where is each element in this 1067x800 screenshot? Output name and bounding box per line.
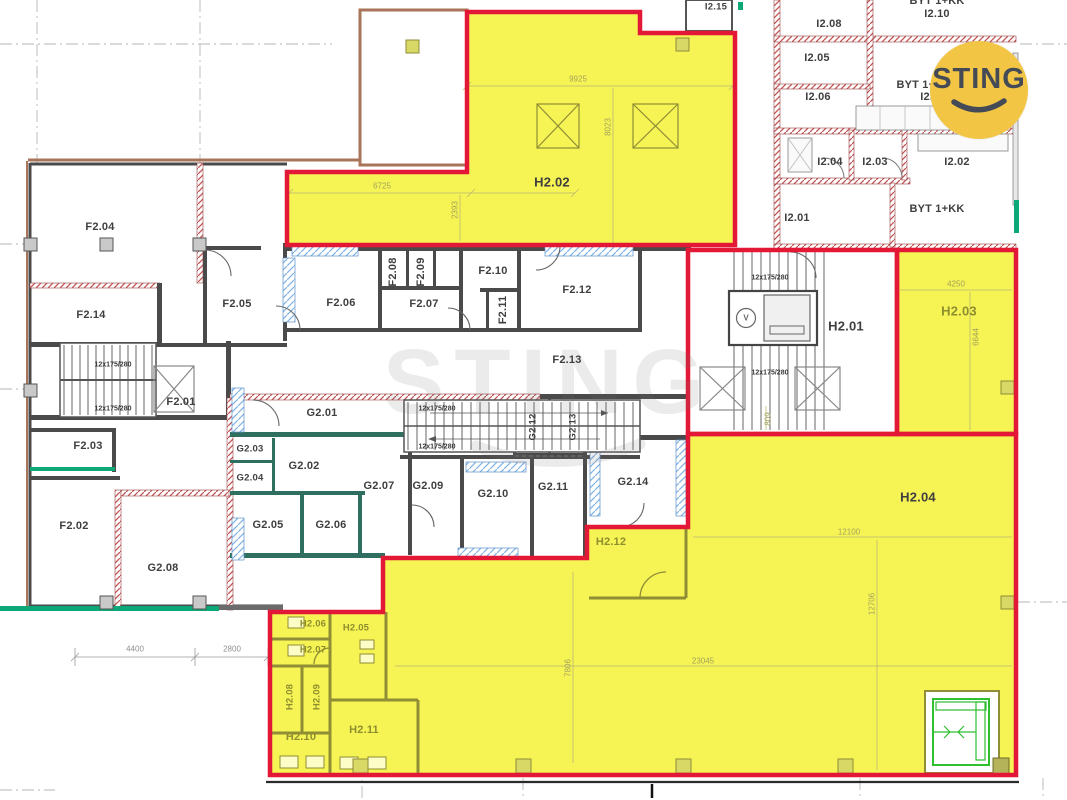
room-label-i2-15: I2.15 bbox=[705, 2, 727, 13]
room-label-i2-03: I2.03 bbox=[862, 156, 887, 168]
dim-12100: 12100 bbox=[838, 528, 860, 537]
stair-note-g2: 12x175/280 bbox=[419, 444, 456, 451]
room-label-i2-06: I2.06 bbox=[805, 91, 830, 103]
floor-plan: STING F2.04 F2.14 F2.05 F2.01 F2.03 F2.0… bbox=[0, 0, 1067, 800]
room-label-g2-09: G2.09 bbox=[413, 480, 444, 492]
dim-809: 809 bbox=[764, 412, 773, 425]
sting-watermark-smile bbox=[468, 438, 648, 478]
dim-6644: 6644 bbox=[972, 328, 981, 346]
room-label-h2-04: H2.04 bbox=[900, 490, 936, 505]
room-label-f2-02: F2.02 bbox=[59, 520, 88, 532]
sting-logo: STING bbox=[930, 41, 1028, 139]
room-label-g2-11: G2.11 bbox=[538, 481, 568, 493]
sting-logo-smile-icon bbox=[948, 98, 1010, 118]
room-label-g2-12: G2.12 bbox=[528, 414, 539, 441]
room-label-f2-11: F2.11 bbox=[497, 296, 509, 325]
room-label-i2-05: I2.05 bbox=[804, 52, 829, 64]
room-label-f2-01: F2.01 bbox=[166, 396, 195, 408]
room-label-h2-01: H2.01 bbox=[828, 319, 864, 334]
room-label-h2-06: H2.06 bbox=[300, 619, 326, 630]
elevator-bottom-right bbox=[925, 691, 1009, 775]
elevator-h201 bbox=[729, 291, 817, 345]
room-label-i2-10: I2.10 bbox=[924, 8, 949, 20]
room-label-f2-05: F2.05 bbox=[222, 298, 251, 310]
room-label-h2-07: H2.07 bbox=[300, 645, 326, 656]
room-label-f2-14: F2.14 bbox=[76, 309, 105, 321]
stair-note-f2: 12x175/280 bbox=[95, 406, 132, 413]
stair-note-f1: 12x175/280 bbox=[95, 362, 132, 369]
room-label-h2-03: H2.03 bbox=[941, 304, 977, 319]
room-label-byt-bottom: BYT 1+KK bbox=[909, 203, 964, 215]
room-label-g2-14: G2.14 bbox=[618, 476, 649, 488]
room-label-h2-11: H2.11 bbox=[349, 724, 379, 736]
room-label-f2-06: F2.06 bbox=[326, 297, 355, 309]
plan-linework bbox=[0, 0, 1067, 800]
dim-9925: 9925 bbox=[569, 75, 587, 84]
elevator-mark: V bbox=[743, 314, 748, 323]
room-label-g2-10: G2.10 bbox=[478, 488, 509, 500]
room-label-i2-01: I2.01 bbox=[784, 212, 809, 224]
room-label-h2-08: H2.08 bbox=[285, 684, 296, 710]
dim-4250: 4250 bbox=[947, 280, 965, 289]
room-label-f2-03: F2.03 bbox=[73, 440, 102, 452]
room-label-h2-12: H2.12 bbox=[596, 536, 626, 548]
dim-2800: 2800 bbox=[223, 645, 241, 654]
room-label-g2-08: G2.08 bbox=[148, 562, 179, 574]
room-label-g2-13: G2.13 bbox=[568, 414, 579, 441]
room-label-g2-02: G2.02 bbox=[289, 460, 320, 472]
sting-logo-text: STING bbox=[932, 63, 1026, 96]
dim-4400: 4400 bbox=[126, 645, 144, 654]
dim-23045: 23045 bbox=[692, 657, 714, 666]
room-label-g2-07: G2.07 bbox=[364, 480, 395, 492]
stair-note-h1: 12x175/280 bbox=[752, 275, 789, 282]
room-label-i2-02: I2.02 bbox=[944, 156, 969, 168]
dim-8023: 8023 bbox=[604, 118, 613, 136]
room-label-g2-04: G2.04 bbox=[237, 473, 264, 484]
room-label-h2-09: H2.09 bbox=[312, 684, 323, 710]
room-label-g2-06: G2.06 bbox=[316, 519, 347, 531]
room-label-f2-10: F2.10 bbox=[478, 265, 507, 277]
dim-12706: 12706 bbox=[868, 593, 877, 615]
room-label-f2-08: F2.08 bbox=[387, 257, 399, 286]
room-label-f2-09: F2.09 bbox=[415, 257, 427, 286]
room-label-f2-13: F2.13 bbox=[552, 354, 581, 366]
dim-7806: 7806 bbox=[564, 659, 573, 677]
room-label-g2-01: G2.01 bbox=[307, 407, 338, 419]
room-label-h2-10: H2.10 bbox=[286, 731, 316, 743]
room-label-f2-12: F2.12 bbox=[562, 284, 591, 296]
room-label-g2-03: G2.03 bbox=[237, 444, 264, 455]
dim-6725: 6725 bbox=[373, 182, 391, 191]
room-label-f2-04: F2.04 bbox=[85, 221, 114, 233]
dim-2393: 2393 bbox=[451, 201, 460, 219]
room-label-h2-02: H2.02 bbox=[534, 175, 570, 190]
room-label-f2-07: F2.07 bbox=[409, 298, 438, 310]
stair-note-g1: 12x175/280 bbox=[419, 406, 456, 413]
room-label-i2-04: I2.04 bbox=[817, 156, 842, 168]
room-label-byt-top: BYT 1+KK bbox=[909, 0, 964, 7]
room-label-i2-08: I2.08 bbox=[816, 18, 841, 30]
room-label-g2-05: G2.05 bbox=[253, 519, 284, 531]
room-label-h2-05: H2.05 bbox=[343, 623, 369, 634]
stair-note-h2: 12x175/280 bbox=[752, 370, 789, 377]
